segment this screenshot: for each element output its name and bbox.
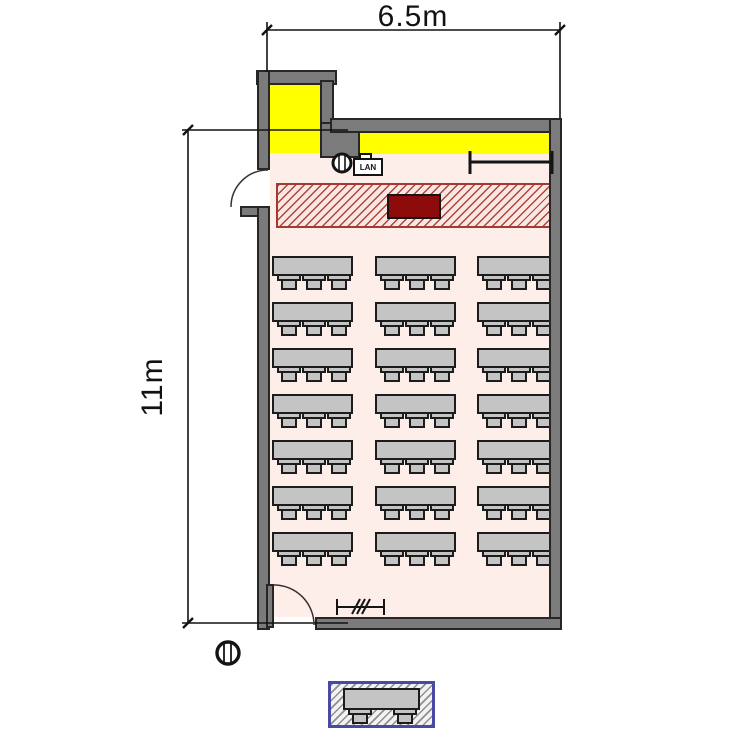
chair-seat [409, 464, 425, 474]
chair [380, 366, 404, 382]
chair-seat [281, 326, 297, 336]
chair-seat [306, 372, 322, 382]
desk [375, 532, 456, 552]
door-swing-top-left [231, 170, 268, 207]
chair [302, 458, 326, 474]
door-leaf-bottom [266, 584, 274, 628]
chair [430, 550, 454, 566]
desk [272, 532, 353, 552]
chair-seat [434, 326, 450, 336]
lectern [387, 194, 441, 219]
height-dimension-label: 11m [136, 352, 206, 422]
legend-desk [343, 688, 420, 710]
chair-seat [331, 326, 347, 336]
chair [430, 504, 454, 520]
chair-seat [384, 464, 400, 474]
chair-seat [434, 510, 450, 520]
wall-bottom [315, 617, 562, 630]
wall-top [330, 118, 562, 133]
chair-seat [511, 556, 527, 566]
chair [430, 320, 454, 336]
chair-seat [486, 464, 502, 474]
chair-seat [409, 326, 425, 336]
chair [302, 504, 326, 520]
chair-seat [486, 510, 502, 520]
chair [327, 320, 351, 336]
chair-seat [397, 714, 413, 724]
chair [302, 550, 326, 566]
wall-right [549, 118, 562, 630]
chair-seat [511, 510, 527, 520]
chair-seat [384, 280, 400, 290]
chair [482, 274, 506, 290]
chair-seat [306, 280, 322, 290]
desk [477, 256, 558, 276]
chair [277, 504, 301, 520]
chair-seat [486, 418, 502, 428]
chair [277, 366, 301, 382]
chair-seat [434, 280, 450, 290]
chair-seat [409, 418, 425, 428]
chair [405, 458, 429, 474]
whiteboard-strip-top [358, 133, 551, 154]
chair [482, 458, 506, 474]
chair [277, 320, 301, 336]
whiteboard-strip-left [270, 85, 320, 153]
chair-seat [409, 556, 425, 566]
desk [477, 394, 558, 414]
chair-seat [409, 372, 425, 382]
chair-seat [352, 714, 368, 724]
chair-seat [486, 372, 502, 382]
desk [272, 440, 353, 460]
chair-seat [331, 510, 347, 520]
chair [405, 320, 429, 336]
chair [507, 550, 531, 566]
chair-seat [281, 510, 297, 520]
legend-desk-symbol [328, 681, 435, 728]
desk [375, 256, 456, 276]
chair [507, 412, 531, 428]
desk [477, 486, 558, 506]
chair-seat [306, 326, 322, 336]
chair [302, 320, 326, 336]
chair [327, 274, 351, 290]
chair-seat [331, 372, 347, 382]
chair-seat [384, 510, 400, 520]
chair [405, 550, 429, 566]
chair [430, 366, 454, 382]
outlet-symbol-bottom [217, 642, 239, 664]
chair-seat [486, 556, 502, 566]
chair-seat [384, 372, 400, 382]
desk [375, 440, 456, 460]
chair [380, 550, 404, 566]
desk [272, 348, 353, 368]
chair [430, 458, 454, 474]
lan-label: LAN [353, 158, 383, 176]
desk [375, 486, 456, 506]
chair [405, 504, 429, 520]
chair [380, 320, 404, 336]
chair [405, 274, 429, 290]
chair-seat [306, 556, 322, 566]
desk [375, 394, 456, 414]
chair-seat [331, 418, 347, 428]
chair [430, 274, 454, 290]
chair-seat [281, 418, 297, 428]
chair-seat [281, 556, 297, 566]
chair [380, 274, 404, 290]
chair-seat [306, 510, 322, 520]
chair [277, 412, 301, 428]
legend-chair [348, 708, 372, 724]
chair-seat [281, 372, 297, 382]
chair-seat [511, 326, 527, 336]
chair-seat [384, 418, 400, 428]
chair [380, 412, 404, 428]
chair-seat [306, 464, 322, 474]
desk [375, 302, 456, 322]
chair [482, 366, 506, 382]
chair-seat [331, 280, 347, 290]
chair-seat [434, 418, 450, 428]
chair [277, 550, 301, 566]
chair [430, 412, 454, 428]
chair-seat [511, 372, 527, 382]
chair [327, 366, 351, 382]
chair [327, 550, 351, 566]
chair [482, 550, 506, 566]
chair-seat [331, 556, 347, 566]
chair [327, 504, 351, 520]
chair-seat [281, 464, 297, 474]
desk [477, 532, 558, 552]
chair [482, 412, 506, 428]
chair-seat [384, 556, 400, 566]
chair [507, 504, 531, 520]
chair [507, 366, 531, 382]
chair-seat [434, 464, 450, 474]
chair-seat [486, 326, 502, 336]
chair-seat [511, 464, 527, 474]
chair [380, 458, 404, 474]
floor-plan: 6.5m 11m LAN [0, 0, 750, 750]
chair-seat [384, 326, 400, 336]
desk [477, 302, 558, 322]
chair-seat [511, 280, 527, 290]
chair-seat [486, 280, 502, 290]
width-dimension-label: 6.5m [363, 0, 463, 34]
chair [507, 458, 531, 474]
chair-seat [434, 372, 450, 382]
chair-seat [409, 280, 425, 290]
desk [375, 348, 456, 368]
chair [302, 412, 326, 428]
desk [272, 394, 353, 414]
chair [507, 274, 531, 290]
chair [277, 458, 301, 474]
legend-chair [393, 708, 417, 724]
chair-seat [281, 280, 297, 290]
chair-seat [331, 464, 347, 474]
chair [302, 366, 326, 382]
wall-left-lower [257, 206, 270, 630]
chair [277, 274, 301, 290]
desk [272, 256, 353, 276]
chair [405, 412, 429, 428]
chair [327, 458, 351, 474]
chair [482, 504, 506, 520]
chair [507, 320, 531, 336]
chair [302, 274, 326, 290]
chair [380, 504, 404, 520]
desk [272, 302, 353, 322]
desk [272, 486, 353, 506]
chair-seat [434, 556, 450, 566]
chair [327, 412, 351, 428]
chair [482, 320, 506, 336]
chair [405, 366, 429, 382]
chair-seat [511, 418, 527, 428]
desk [477, 348, 558, 368]
wall-left-upper [257, 70, 270, 170]
chair-seat [409, 510, 425, 520]
chair-seat [306, 418, 322, 428]
desk [477, 440, 558, 460]
